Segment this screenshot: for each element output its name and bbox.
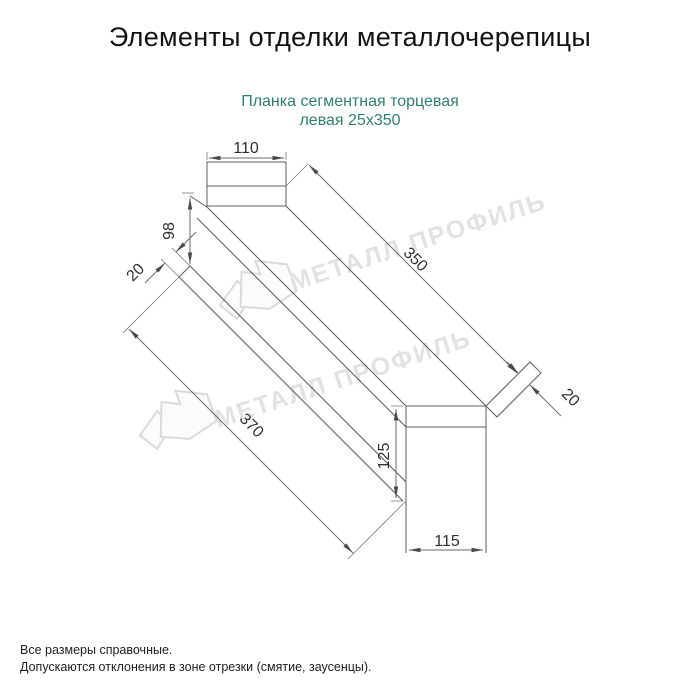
brand-watermark-text: МЕТАЛЛ ПРОФИЛЬ xyxy=(286,187,550,296)
dimension-top-tab-width: 110 xyxy=(207,140,286,160)
dimension-label-110: 110 xyxy=(233,140,259,157)
page: МЕТАЛЛ ПРОФИЛЬ МЕТАЛЛ ПРОФИЛЬ xyxy=(0,0,700,700)
dimension-right-hem: 20 xyxy=(507,362,583,416)
dimension-label-98: 98 xyxy=(161,222,178,240)
product-name: Планка сегментная торцевая левая 25х350 xyxy=(0,92,700,130)
footnotes: Все размеры справочные. Допускаются откл… xyxy=(20,642,372,676)
end-hem-flange xyxy=(486,362,541,417)
footnote-tolerances: Допускаются отклонения в зоне отрезки (с… xyxy=(20,659,372,676)
top-end-tab xyxy=(207,162,286,206)
footnote-reference-sizes: Все размеры справочные. xyxy=(20,642,372,659)
page-title: Элементы отделки металлочерепицы xyxy=(0,22,700,53)
dimension-label-20-left: 20 xyxy=(124,260,149,285)
dimension-label-115: 115 xyxy=(434,533,460,550)
dimension-label-20-right: 20 xyxy=(558,386,583,411)
dimension-label-125: 125 xyxy=(376,443,393,470)
dimension-left-hem: 20 xyxy=(124,232,196,285)
dimension-bottom-tab-width: 115 xyxy=(409,533,483,550)
product-name-line2: левая 25х350 xyxy=(0,111,700,130)
brand-logo-icon xyxy=(132,384,219,452)
product-name-line1: Планка сегментная торцевая xyxy=(0,92,700,111)
brand-logo-icon xyxy=(212,254,299,322)
